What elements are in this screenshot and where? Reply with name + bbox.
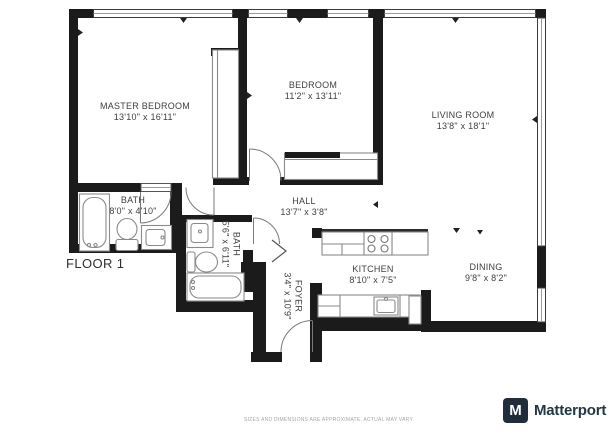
toilet-2-icon — [187, 252, 218, 272]
floor-label: FLOOR 1 — [66, 256, 124, 271]
door-arc-master-bedroom — [186, 188, 214, 216]
door-arc-entry — [281, 321, 313, 353]
room-label-master-bedroom: MASTER BEDROOM 13'10" x 16'11" — [100, 101, 190, 124]
matterport-wordmark: Matterport — [534, 402, 606, 419]
fridge-icon — [409, 296, 421, 324]
window — [249, 10, 288, 18]
window — [94, 10, 233, 18]
room-label-living-room: LIVING ROOM 13'8" x 18'1" — [432, 110, 495, 133]
closet-master-icon — [213, 50, 239, 178]
room-label-bath: BATH 8'0" x 4'10" — [109, 195, 156, 218]
matterport-m-icon: M — [503, 398, 528, 423]
matterport-logo: M Matterport — [503, 398, 606, 423]
room-label-bath-2: BATH 5'6" x 6'11" — [219, 221, 242, 268]
bathtub-2-icon — [187, 273, 244, 301]
door-arc-bedroom — [250, 149, 282, 181]
kitchen-sink-icon — [374, 297, 398, 315]
door-arc-bath-2 — [254, 218, 280, 244]
window — [538, 18, 546, 246]
sink-vanity-2-icon — [187, 220, 213, 248]
room-label-foyer: FOYER 3'4" x 10'9" — [281, 272, 304, 319]
room-label-kitchen: KITCHEN 8'10" x 7'5" — [349, 264, 396, 287]
window — [328, 10, 369, 18]
room-label-hall: HALL 13'7" x 3'8" — [280, 196, 327, 219]
room-label-bedroom: BEDROOM 11'2" x 13'11" — [285, 80, 342, 103]
disclaimer-text: SIZES AND DIMENSIONS ARE APPROXIMATE, AC… — [244, 417, 414, 423]
window — [538, 288, 546, 322]
pocket-door — [141, 184, 171, 192]
stove-icon — [364, 232, 392, 255]
closet-bedroom-icon — [285, 152, 378, 180]
bathtub-icon — [80, 194, 110, 251]
sink-vanity-icon — [142, 226, 172, 250]
kitchen-lower-counter-icon — [318, 295, 420, 317]
room-label-dining: DINING 9'8" x 8'2" — [465, 262, 507, 285]
window — [385, 10, 536, 18]
toilet-icon — [116, 219, 138, 251]
floorplan-page: MASTER BEDROOM 13'10" x 16'11" BEDROOM 1… — [0, 0, 615, 435]
